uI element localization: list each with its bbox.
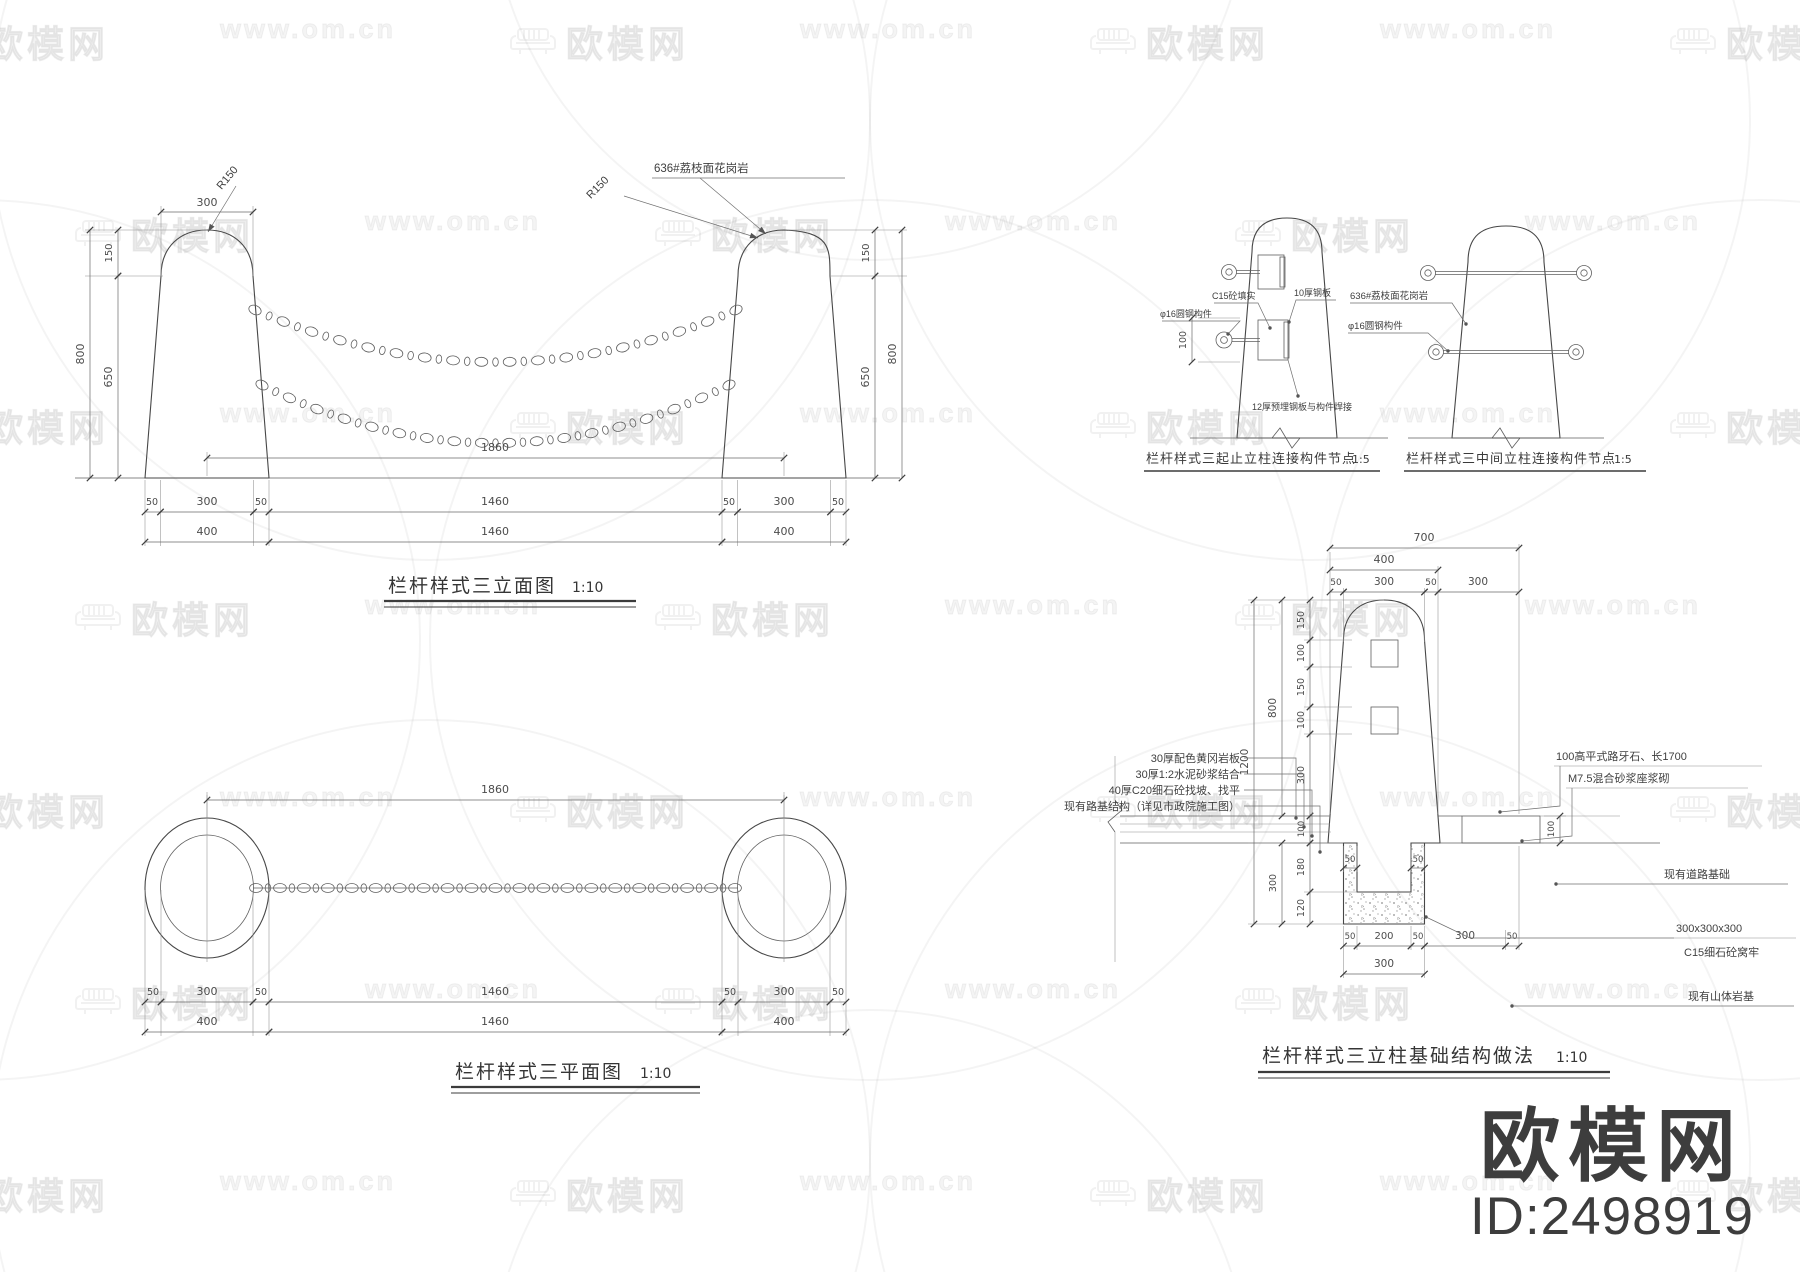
dim-label: 300 [1374,958,1394,970]
site-logo-brand: 欧模网 [1470,1106,1754,1188]
dim-label: 50 [1330,578,1342,588]
extension-lines [1248,544,1796,978]
chain-link [711,387,720,397]
note: 636#荔枝面花岗岩 [1350,290,1428,302]
chain-link [531,355,544,365]
radius-label: R150 [584,174,611,201]
plan-view: 18605030050146050300504001460400 栏杆样式三平面… [142,783,849,1093]
chain-link [656,409,664,419]
dim-label: 100 [1297,821,1307,837]
note: 300x300x300 [1676,923,1742,935]
note: φ16圆钢构件 [1348,320,1403,332]
material-label: 636#荔枝面花岗岩 [654,161,749,175]
chain-link [521,357,527,366]
note: 现有山体岩基 [1688,989,1754,1003]
dim-label: 400 [1374,553,1395,566]
dim-label: 1860 [481,783,509,796]
dim-label: 300 [1374,576,1394,588]
upper-eye-ring [1222,265,1237,280]
leaders [208,178,845,238]
note: C15砼填实 [1212,290,1256,301]
chain-link [276,315,291,328]
chain-link [465,438,471,447]
dim-label: 100 [1296,644,1307,662]
dim-label: 50 [832,497,844,508]
chain-link [728,303,743,316]
site-logo: 欧模网 ID:2498919 [1470,1106,1754,1246]
chain-link [475,357,488,366]
extension-lines [1198,318,1240,362]
chain-link [437,435,444,444]
chain-link [410,431,417,440]
chain-link [309,403,324,416]
bollard-right [722,230,846,478]
chain-link [418,352,432,363]
curb-stone [1462,816,1540,843]
chain-link [361,342,375,354]
dim-label: 50 [724,987,736,998]
chain-link [684,399,692,409]
note: φ16圆钢构件 [1160,308,1212,319]
note: 现有道路基础 [1664,867,1730,881]
chain-link [587,348,601,359]
dim-label: 50 [146,497,158,508]
chain-link [392,427,406,438]
dim-label: 50 [832,987,844,998]
dim-label: 120 [1296,899,1307,917]
note: 现有路基结构（详见市政院施工图） [1064,799,1240,813]
chain-link [503,357,516,366]
note: 12厚预埋钢板与构件焊接 [1252,401,1352,412]
chain-link [448,436,462,446]
eye-loop [1577,266,1592,281]
dim-label: 300 [774,985,795,998]
chain-link [493,358,499,366]
detail-mid-post: 636#荔枝面花岗岩 φ16圆钢构件 栏杆样式三中间立柱连接构件节点 1:5 [1348,226,1646,471]
dim-label: 300 [197,196,218,209]
chain-link [605,346,612,355]
dim-label: 1460 [481,1015,509,1028]
dim-label: 400 [774,525,795,538]
site-logo-id: ID:2498919 [1470,1188,1754,1246]
dim-label: 50 [255,497,267,508]
dim-label: 300 [1296,766,1307,784]
dim-label: 200 [1374,931,1393,942]
dim-label: 1460 [481,525,509,538]
dimensions: 100 [1178,315,1195,365]
chain-link [629,418,637,428]
dim-label: 50 [147,987,159,998]
dim-label: 50 [1507,932,1518,942]
dim-label: 50 [723,497,735,508]
chain-link [382,425,389,434]
view-scale: 1:10 [640,1066,671,1082]
chain-link [639,412,654,424]
chain-link [666,403,681,416]
elevation-view: 3001506508001506508001860503005014605030… [74,161,907,607]
note: C15细石砼窝牢 [1684,945,1759,959]
bollard-section [1452,226,1560,438]
chain-link [265,311,273,321]
detail-scale: 1:5 [1614,453,1632,466]
chain-link [365,421,380,433]
chain-link [694,391,709,404]
cad-sheet: { "watermark": { "brand": "欧模网", "url": … [0,0,1800,1272]
view-title: 栏杆样式三立面图 [388,575,556,597]
chain-link [661,331,669,341]
chain-link [574,431,581,440]
dim-label: 50 [1425,578,1437,588]
note: 40厚C20细石砼找坡、找平 [1109,783,1240,797]
eye-loop [1569,345,1584,360]
dim-label: 50 [1345,855,1356,865]
dim-label: 800 [1267,698,1279,718]
chain-hole-lower [1371,707,1398,734]
view-title: 栏杆样式三平面图 [455,1061,623,1083]
chain-link [322,331,330,341]
chain-link [577,351,584,360]
bollard-left [145,230,269,478]
chain-link [559,352,573,363]
note: M7.5混合砂浆座浆砌 [1568,771,1669,785]
dim-label: 100 [1178,331,1189,349]
dim-label: 700 [1414,531,1435,544]
dim-label: 180 [1296,858,1307,876]
chain-link [557,433,571,444]
dimensions: 3001506508001506508001860503005014605030… [74,196,905,545]
dim-label: 300 [1268,874,1279,892]
chain-hole-upper [1371,640,1398,667]
chain-link [616,342,630,354]
chain-link [407,351,414,360]
dim-label: 50 [1345,932,1356,942]
view-scale: 1:10 [572,580,603,596]
dim-label: 400 [197,1015,218,1028]
eye-loop [1421,266,1436,281]
chain-link [520,438,526,447]
dim-label: 400 [774,1015,795,1028]
chain-link [633,339,641,349]
note: 30厚1:2水泥砂浆结合 [1135,767,1240,781]
dim-label: 150 [861,243,872,262]
dim-label: 150 [1296,611,1307,629]
view-title: 栏杆样式三立柱基础结构做法 [1262,1045,1535,1067]
chain-link [271,387,280,397]
dim-label: 300 [774,495,795,508]
chain-link [446,355,459,365]
dim-label: 1860 [481,441,509,454]
dim-label: 300 [1468,576,1488,588]
dim-label: 50 [1413,932,1424,942]
chain-link [354,418,362,428]
chain-upper [247,303,743,366]
chain-link [420,433,434,444]
chain-link [700,315,715,328]
chain-link [282,391,297,404]
chain-link [247,303,262,316]
chain-link [379,346,386,355]
dimensions: 18605030050146050300504001460400 [142,783,849,1035]
chain-lower [254,378,736,447]
chain-link [327,409,335,419]
pit-concrete [1358,893,1412,924]
dim-label: 300 [197,495,218,508]
dim-label: 800 [74,344,87,365]
lower-pocket [1258,320,1288,360]
drawing-canvas: 3001506508001506508001860503005014605030… [0,0,1800,1272]
chain-link [672,325,687,338]
eye-loop [1429,345,1444,360]
chain-link [612,421,627,433]
dim-label: 1460 [481,495,509,508]
dim-label: 650 [102,367,115,388]
chain-link [350,339,358,349]
dim-label: 100 [1547,821,1557,837]
chain-link [718,311,726,321]
dim-label: 50 [1413,855,1424,865]
detail-scale: 1:5 [1352,453,1370,466]
detail-title: 栏杆样式三中间立柱连接构件节点 [1406,451,1616,466]
chain-link [530,436,544,446]
detail-title: 栏杆样式三起止立柱连接构件节点 [1146,451,1356,466]
dim-label: 1460 [481,985,509,998]
dim-label: 650 [859,367,872,388]
chain-link [690,322,698,332]
note: 10厚钢板 [1294,287,1331,298]
note: 100高平式路牙石、长1700 [1556,749,1687,763]
dim-label: 50 [255,987,267,998]
chain-link [436,355,442,364]
chain-link [389,348,403,359]
note: 30厚配色黄冈岩板 [1151,751,1240,765]
chain-link [337,412,352,424]
chain-link [602,425,609,434]
dim-label: 150 [1296,678,1307,696]
chain-link [549,355,555,364]
chain-link [333,334,348,346]
dim-label: 400 [197,525,218,538]
foundation-section: 7004005030050300150100150100300100180120… [1064,531,1796,1078]
dim-label: 300 [197,985,218,998]
radius-label: R150 [215,164,241,192]
chain-link [464,357,470,366]
chain-link [293,322,301,332]
dim-label: 800 [886,344,899,365]
chain-link [584,427,598,438]
dim-label: 100 [1296,711,1307,729]
chain-link [304,325,319,338]
chain-link [644,334,659,346]
dim-label: 1200 [1239,749,1251,776]
view-scale: 1:10 [1556,1050,1587,1066]
detail-end-post: 100 C15砼填实 φ16圆钢构件 10厚钢板 12厚预埋钢板与构件焊接 栏杆… [1144,218,1388,471]
dim-label: 150 [104,243,115,262]
chain-link [547,435,554,444]
chain-link [299,399,307,409]
